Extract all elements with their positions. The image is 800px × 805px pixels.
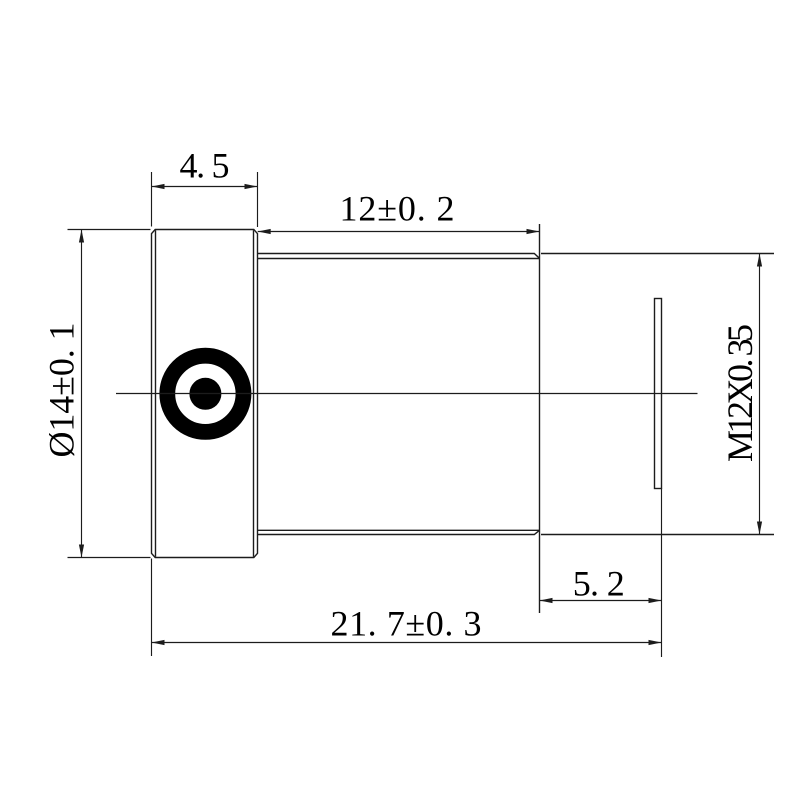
svg-text:5. 2: 5. 2 xyxy=(573,563,625,603)
svg-text:4. 5: 4. 5 xyxy=(180,146,230,186)
svg-text:Ø14±0. 1: Ø14±0. 1 xyxy=(42,323,82,458)
svg-text:12±0. 2: 12±0. 2 xyxy=(340,188,455,228)
svg-text:21. 7±0. 3: 21. 7±0. 3 xyxy=(331,604,482,644)
svg-text:M12X0. 35: M12X0. 35 xyxy=(720,324,760,462)
